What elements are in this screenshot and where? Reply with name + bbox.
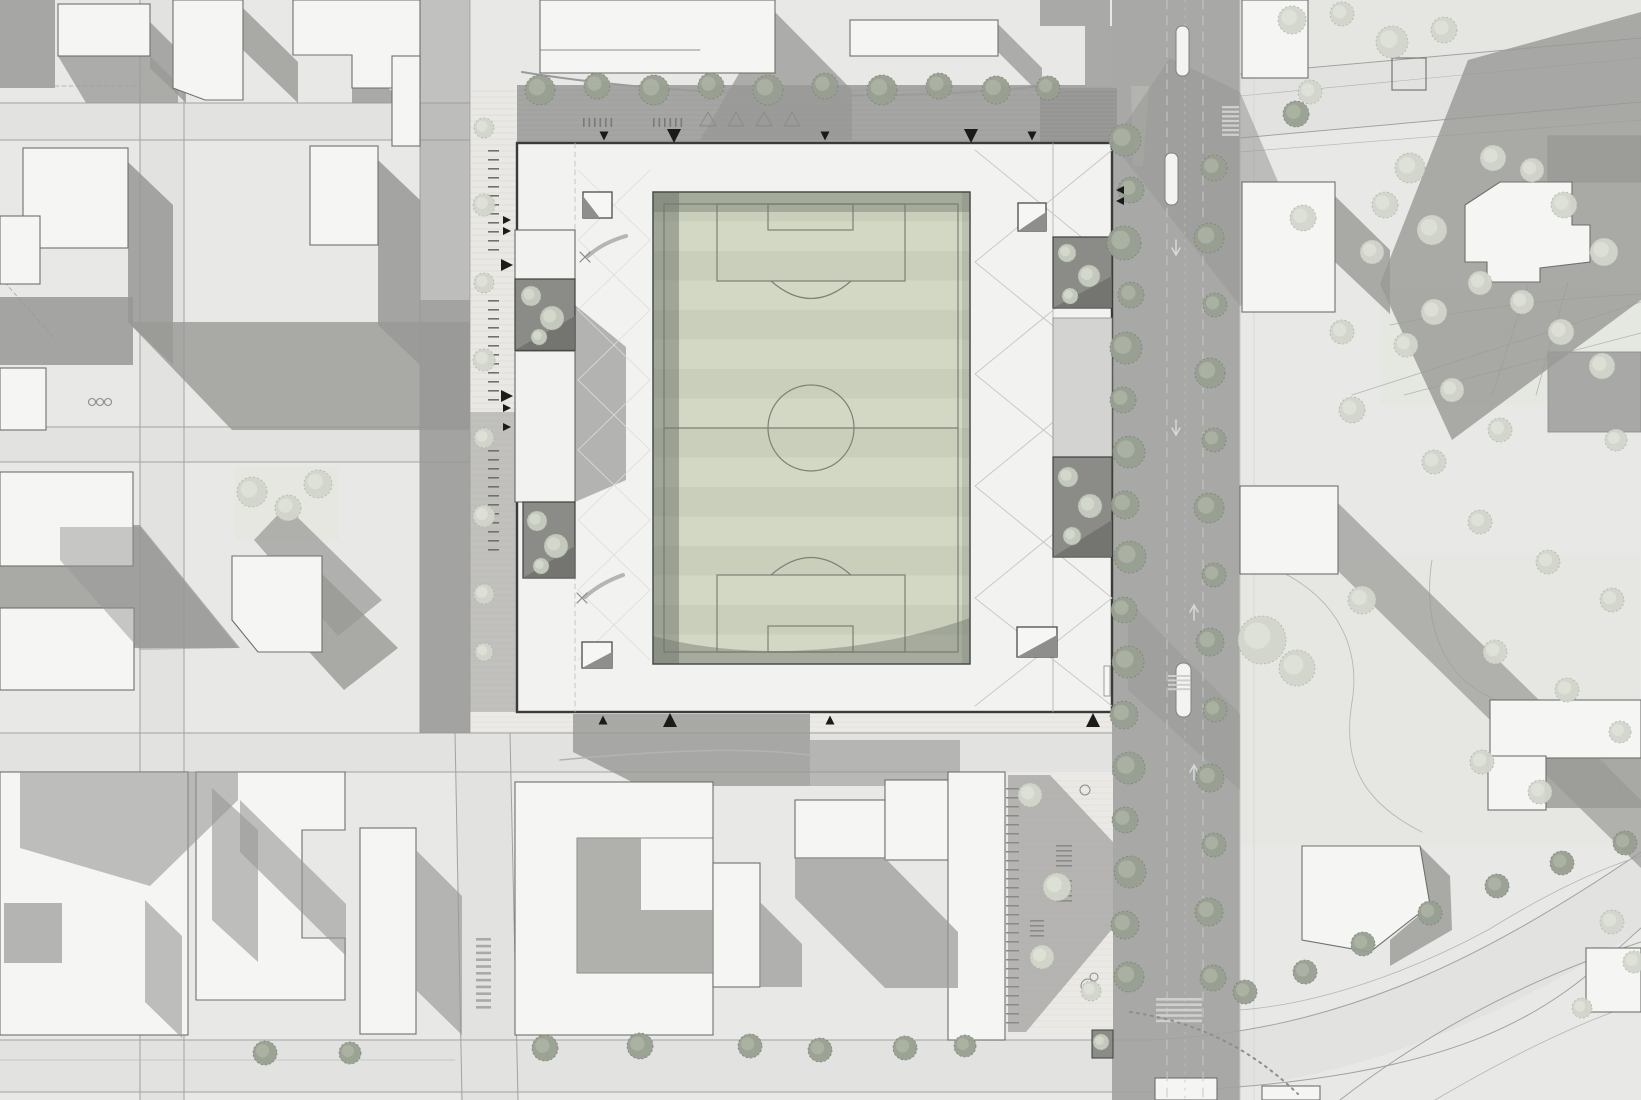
tree-highlight bbox=[1204, 159, 1218, 173]
park-tree bbox=[1330, 320, 1354, 344]
dash bbox=[488, 249, 499, 251]
tree-highlight bbox=[1244, 622, 1270, 648]
dash bbox=[681, 118, 683, 127]
park-tree bbox=[1520, 158, 1544, 182]
tree-highlight bbox=[533, 331, 542, 340]
gray-building bbox=[1085, 26, 1112, 86]
dash bbox=[476, 999, 491, 1002]
courtyard-tree bbox=[521, 286, 541, 306]
dash bbox=[488, 168, 499, 170]
avenue-tree bbox=[1112, 646, 1144, 678]
tree-highlight bbox=[1554, 196, 1568, 210]
tree-highlight bbox=[1206, 296, 1219, 309]
layer-stadium bbox=[515, 72, 1112, 760]
park-tree bbox=[1238, 616, 1286, 664]
tree-highlight bbox=[1612, 724, 1624, 736]
tree-highlight bbox=[1061, 470, 1072, 481]
tree-highlight bbox=[1551, 323, 1565, 337]
dash bbox=[1030, 925, 1044, 927]
avenue-tree bbox=[738, 1034, 762, 1058]
avenue-tree bbox=[1111, 597, 1137, 623]
dash bbox=[488, 336, 499, 338]
stadium-slot bbox=[1104, 666, 1110, 696]
avenue-tree bbox=[532, 1035, 558, 1061]
park-tree bbox=[1043, 873, 1071, 901]
dash bbox=[488, 531, 499, 533]
west-volume bbox=[515, 351, 575, 502]
tree-highlight bbox=[535, 560, 544, 569]
park-tree bbox=[1572, 998, 1592, 1018]
tree-highlight bbox=[1473, 753, 1486, 766]
tree-highlight bbox=[1117, 440, 1135, 458]
park-tree bbox=[474, 428, 494, 448]
tree-highlight bbox=[547, 537, 560, 550]
avenue-tree bbox=[1293, 960, 1317, 984]
park-tree bbox=[1480, 145, 1506, 171]
park-tree bbox=[1548, 319, 1574, 345]
courtyard-tree bbox=[1062, 288, 1078, 304]
dash bbox=[664, 118, 666, 127]
mowing-stripe bbox=[653, 576, 970, 606]
park-tree bbox=[1468, 510, 1492, 534]
tree-highlight bbox=[1117, 756, 1135, 774]
avenue-tree bbox=[1110, 701, 1138, 729]
tree-highlight bbox=[896, 1039, 909, 1052]
dash bbox=[1156, 1009, 1202, 1012]
tree-highlight bbox=[1203, 969, 1217, 983]
building bbox=[1242, 182, 1335, 312]
dash bbox=[1006, 878, 1019, 880]
tree-highlight bbox=[1342, 401, 1356, 415]
tree-highlight bbox=[630, 1037, 644, 1051]
park-tree bbox=[1278, 6, 1306, 34]
mowing-stripe bbox=[653, 399, 970, 429]
tree-highlight bbox=[1118, 966, 1135, 983]
tree-highlight bbox=[1531, 783, 1544, 796]
avenue-tree bbox=[1114, 856, 1146, 888]
dash bbox=[1006, 941, 1019, 943]
park-tree bbox=[1440, 378, 1464, 402]
park-tree bbox=[475, 643, 493, 661]
dash bbox=[1006, 788, 1019, 790]
tree-highlight bbox=[1421, 219, 1438, 236]
tree-highlight bbox=[1592, 357, 1606, 371]
dash bbox=[476, 972, 491, 975]
dash bbox=[488, 327, 499, 329]
courtyard-tree bbox=[527, 511, 547, 531]
avenue-tree bbox=[1109, 124, 1141, 156]
courtyard-tree bbox=[531, 329, 547, 345]
dash bbox=[659, 118, 661, 127]
building bbox=[1155, 1078, 1217, 1100]
avenue-tree bbox=[698, 73, 724, 99]
tree-highlight bbox=[1471, 513, 1484, 526]
avenue-tree bbox=[1196, 628, 1224, 656]
tree-highlight bbox=[1523, 161, 1536, 174]
dash bbox=[1006, 824, 1019, 826]
park-tree bbox=[1555, 678, 1579, 702]
shadow bbox=[420, 300, 470, 733]
park-tree bbox=[1470, 750, 1494, 774]
tree-highlight bbox=[477, 121, 488, 132]
bus-island bbox=[1176, 26, 1189, 76]
dash bbox=[589, 118, 591, 127]
tree-highlight bbox=[308, 474, 323, 489]
dash bbox=[476, 938, 491, 941]
tree-highlight bbox=[1205, 566, 1218, 579]
tree-highlight bbox=[1114, 705, 1129, 720]
mowing-stripe bbox=[653, 340, 970, 370]
tree-highlight bbox=[1113, 128, 1131, 146]
tree-highlight bbox=[342, 1045, 354, 1057]
tree-highlight bbox=[741, 1037, 754, 1050]
tree-highlight bbox=[241, 481, 258, 498]
courtyard-tree bbox=[1063, 527, 1081, 545]
mowing-stripe bbox=[653, 458, 970, 488]
dash bbox=[476, 979, 491, 982]
tree-highlight bbox=[815, 77, 829, 91]
park-tree bbox=[1422, 450, 1446, 474]
dash bbox=[1222, 129, 1239, 131]
tree-highlight bbox=[1081, 268, 1093, 280]
avenue-tree bbox=[1194, 493, 1224, 523]
avenue-tree bbox=[1112, 807, 1138, 833]
tree-highlight bbox=[1301, 83, 1314, 96]
tree-highlight bbox=[1021, 786, 1034, 799]
tree-highlight bbox=[1380, 30, 1398, 48]
stand-shadow-west bbox=[653, 192, 679, 664]
dash bbox=[488, 459, 499, 461]
tree-highlight bbox=[1205, 431, 1218, 444]
dash bbox=[1006, 959, 1019, 961]
dash bbox=[476, 992, 491, 995]
park-tree bbox=[1018, 783, 1042, 807]
dash bbox=[1030, 935, 1044, 937]
tree-highlight bbox=[1603, 913, 1616, 926]
dash bbox=[1056, 845, 1072, 847]
dash bbox=[1006, 1004, 1019, 1006]
dash bbox=[476, 986, 491, 989]
dash bbox=[1030, 920, 1044, 922]
dash bbox=[1006, 842, 1019, 844]
dash bbox=[1156, 1014, 1202, 1017]
avenue-tree bbox=[926, 73, 952, 99]
dash bbox=[488, 372, 499, 374]
dash bbox=[488, 318, 499, 320]
avenue-tree bbox=[1351, 932, 1375, 956]
dash bbox=[476, 945, 491, 948]
park-tree bbox=[1360, 240, 1384, 264]
avenue-tree bbox=[1202, 428, 1226, 452]
tree-highlight bbox=[1486, 643, 1499, 656]
dash bbox=[1006, 905, 1019, 907]
dash bbox=[1056, 860, 1072, 862]
dash bbox=[1168, 688, 1190, 690]
tree-highlight bbox=[1033, 948, 1046, 961]
park-tree bbox=[237, 477, 267, 507]
tree-highlight bbox=[1443, 381, 1456, 394]
park-tree bbox=[1551, 192, 1577, 218]
courtyard-tree bbox=[1078, 494, 1102, 518]
dash bbox=[1006, 860, 1019, 862]
stand-shadow-north bbox=[653, 192, 970, 212]
dash bbox=[1006, 806, 1019, 808]
dash bbox=[1222, 120, 1239, 122]
shadow bbox=[420, 103, 470, 300]
building bbox=[795, 800, 885, 858]
park-tree bbox=[1330, 2, 1354, 26]
courtyard-tree bbox=[1058, 467, 1078, 487]
tree-highlight bbox=[1352, 590, 1367, 605]
courtyard-tree bbox=[1093, 1034, 1109, 1050]
building bbox=[850, 20, 998, 56]
tree-highlight bbox=[1626, 954, 1638, 966]
avenue-tree bbox=[1111, 911, 1139, 939]
park-tree bbox=[1600, 910, 1624, 934]
tree-highlight bbox=[1200, 632, 1215, 647]
avenue-tree bbox=[1036, 76, 1060, 100]
park-tree bbox=[473, 505, 495, 527]
dash bbox=[1006, 968, 1019, 970]
park-tree bbox=[1279, 650, 1315, 686]
courtyard-tree bbox=[533, 558, 549, 574]
tree-highlight bbox=[811, 1041, 824, 1054]
park-tree bbox=[1483, 640, 1507, 664]
tree-highlight bbox=[524, 289, 535, 300]
tree-highlight bbox=[1115, 811, 1129, 825]
tree-highlight bbox=[1424, 303, 1438, 317]
dash bbox=[1006, 986, 1019, 988]
tree-highlight bbox=[1293, 209, 1307, 223]
tree-highlight bbox=[1284, 655, 1304, 675]
park-tree bbox=[1431, 17, 1457, 43]
architectural-site-plan bbox=[0, 0, 1641, 1100]
tree-highlight bbox=[1421, 904, 1434, 917]
tree-highlight bbox=[1594, 242, 1609, 257]
park-tree bbox=[1590, 238, 1618, 266]
gray-building bbox=[1040, 0, 1110, 26]
dash bbox=[476, 958, 491, 961]
dash bbox=[476, 952, 491, 955]
courtyard-tree bbox=[1078, 265, 1100, 287]
avenue-tree bbox=[1195, 358, 1225, 388]
west-volume bbox=[515, 230, 575, 279]
dash bbox=[1006, 1022, 1019, 1024]
dash bbox=[1006, 851, 1019, 853]
dash bbox=[1168, 675, 1190, 677]
avenue-tree bbox=[1550, 851, 1574, 875]
avenue-tree bbox=[812, 73, 838, 99]
tree-highlight bbox=[701, 77, 715, 91]
park-tree bbox=[1600, 588, 1624, 612]
tree-highlight bbox=[1118, 545, 1136, 563]
road-fill bbox=[0, 427, 470, 462]
tree-highlight bbox=[1199, 362, 1216, 379]
dash bbox=[488, 504, 499, 506]
dash bbox=[1222, 115, 1239, 117]
tree-highlight bbox=[477, 276, 488, 287]
tree-highlight bbox=[1282, 10, 1297, 25]
tree-highlight bbox=[1488, 877, 1501, 890]
tree-highlight bbox=[1354, 935, 1367, 948]
tree-highlight bbox=[1397, 336, 1410, 349]
dash bbox=[1056, 850, 1072, 852]
courtyard-tree bbox=[1058, 244, 1076, 262]
dash bbox=[488, 495, 499, 497]
dash bbox=[1168, 684, 1190, 686]
building bbox=[0, 368, 46, 430]
tree-highlight bbox=[1616, 834, 1629, 847]
park-tree bbox=[1488, 418, 1512, 442]
dash bbox=[1006, 896, 1019, 898]
dash bbox=[488, 309, 499, 311]
park-tree bbox=[1605, 429, 1627, 451]
dash bbox=[488, 240, 499, 242]
dash bbox=[1222, 124, 1239, 126]
dash bbox=[1006, 1013, 1019, 1015]
avenue-tree bbox=[954, 1035, 976, 1057]
site-plan-svg bbox=[0, 0, 1641, 1100]
dash bbox=[653, 118, 655, 127]
dash bbox=[1006, 950, 1019, 952]
tree-highlight bbox=[543, 309, 556, 322]
football-pitch bbox=[653, 192, 970, 664]
dash bbox=[583, 118, 585, 127]
dash bbox=[1222, 134, 1239, 136]
dash bbox=[1156, 1003, 1202, 1006]
building bbox=[0, 216, 40, 284]
tree-highlight bbox=[1539, 553, 1552, 566]
tree-highlight bbox=[1116, 650, 1134, 668]
tree-highlight bbox=[1081, 497, 1094, 510]
dash bbox=[1006, 833, 1019, 835]
avenue-tree bbox=[1114, 541, 1146, 573]
avenue-tree bbox=[1195, 898, 1223, 926]
avenue-tree bbox=[1118, 282, 1144, 308]
dash bbox=[488, 486, 499, 488]
avenue-tree bbox=[1485, 874, 1509, 898]
avenue-tree bbox=[982, 76, 1010, 104]
park-tree bbox=[1528, 780, 1552, 804]
building bbox=[948, 772, 1005, 1040]
avenue-tree bbox=[639, 75, 669, 105]
avenue-tree bbox=[1233, 980, 1257, 1004]
dash bbox=[670, 118, 672, 127]
dash bbox=[594, 118, 596, 127]
park-tree bbox=[1395, 153, 1425, 183]
dash bbox=[600, 118, 602, 127]
stand-shadow-east bbox=[962, 192, 970, 664]
dash bbox=[1006, 923, 1019, 925]
shadow-west-plaza bbox=[470, 412, 517, 712]
dash bbox=[488, 300, 499, 302]
tree-highlight bbox=[278, 499, 292, 513]
park-tree bbox=[473, 349, 495, 371]
dash bbox=[675, 118, 677, 127]
building bbox=[885, 780, 948, 860]
dash bbox=[488, 222, 499, 224]
tree-highlight bbox=[1483, 149, 1497, 163]
tree-highlight bbox=[643, 79, 660, 96]
tree-highlight bbox=[1363, 243, 1376, 256]
park-tree bbox=[1609, 721, 1631, 743]
tree-highlight bbox=[1513, 293, 1526, 306]
tree-highlight bbox=[1296, 963, 1309, 976]
dash bbox=[1030, 930, 1044, 932]
building bbox=[540, 0, 775, 73]
building bbox=[392, 56, 420, 146]
park-tree bbox=[1339, 397, 1365, 423]
dash bbox=[488, 390, 499, 392]
bus-island bbox=[1165, 153, 1178, 205]
avenue-tree bbox=[1107, 226, 1141, 260]
avenue-tree bbox=[1113, 752, 1145, 784]
park-tree bbox=[1623, 951, 1641, 973]
tree-highlight bbox=[757, 79, 774, 96]
tree-highlight bbox=[1206, 701, 1219, 714]
dash bbox=[476, 965, 491, 968]
dash bbox=[488, 150, 499, 152]
shadow bbox=[4, 903, 62, 963]
courtyard-tree bbox=[540, 306, 564, 330]
tree-highlight bbox=[1114, 336, 1132, 354]
avenue-tree bbox=[893, 1036, 917, 1060]
tree-highlight bbox=[986, 80, 1001, 95]
tree-highlight bbox=[1434, 21, 1448, 35]
dash bbox=[1156, 998, 1202, 1001]
park-tree bbox=[1417, 215, 1447, 245]
avenue-tree bbox=[1110, 387, 1136, 413]
avenue-tree bbox=[808, 1038, 832, 1062]
dash bbox=[488, 231, 499, 233]
tree-highlight bbox=[530, 514, 541, 525]
mowing-stripe bbox=[653, 517, 970, 547]
tree-highlight bbox=[477, 645, 487, 655]
tree-highlight bbox=[535, 1039, 549, 1053]
dash bbox=[488, 540, 499, 542]
tree-highlight bbox=[1111, 231, 1130, 250]
tree-highlight bbox=[1084, 984, 1095, 995]
dash bbox=[488, 468, 499, 470]
building bbox=[173, 0, 243, 100]
mowing-stripe bbox=[653, 222, 970, 252]
shadow bbox=[0, 0, 55, 88]
avenue-tree bbox=[1200, 965, 1226, 991]
dash bbox=[1006, 914, 1019, 916]
tree-highlight bbox=[1603, 591, 1616, 604]
dash bbox=[611, 118, 613, 127]
avenue-tree bbox=[1114, 962, 1144, 992]
tree-highlight bbox=[871, 79, 888, 96]
avenue-tree bbox=[584, 73, 610, 99]
park-tree bbox=[1510, 290, 1534, 314]
dash bbox=[488, 549, 499, 551]
avenue-tree bbox=[1202, 563, 1226, 587]
dash bbox=[1222, 106, 1239, 108]
dash bbox=[1006, 887, 1019, 889]
park-tree bbox=[1589, 353, 1615, 379]
dash bbox=[488, 399, 499, 401]
mowing-stripe bbox=[653, 281, 970, 311]
park-tree bbox=[1081, 981, 1101, 1001]
park-tree bbox=[1290, 205, 1316, 231]
park-tree bbox=[1421, 299, 1447, 325]
park-tree bbox=[275, 495, 301, 521]
dash bbox=[1006, 815, 1019, 817]
park-tree bbox=[304, 470, 332, 498]
tree-highlight bbox=[929, 77, 943, 91]
avenue-tree bbox=[1202, 833, 1226, 857]
